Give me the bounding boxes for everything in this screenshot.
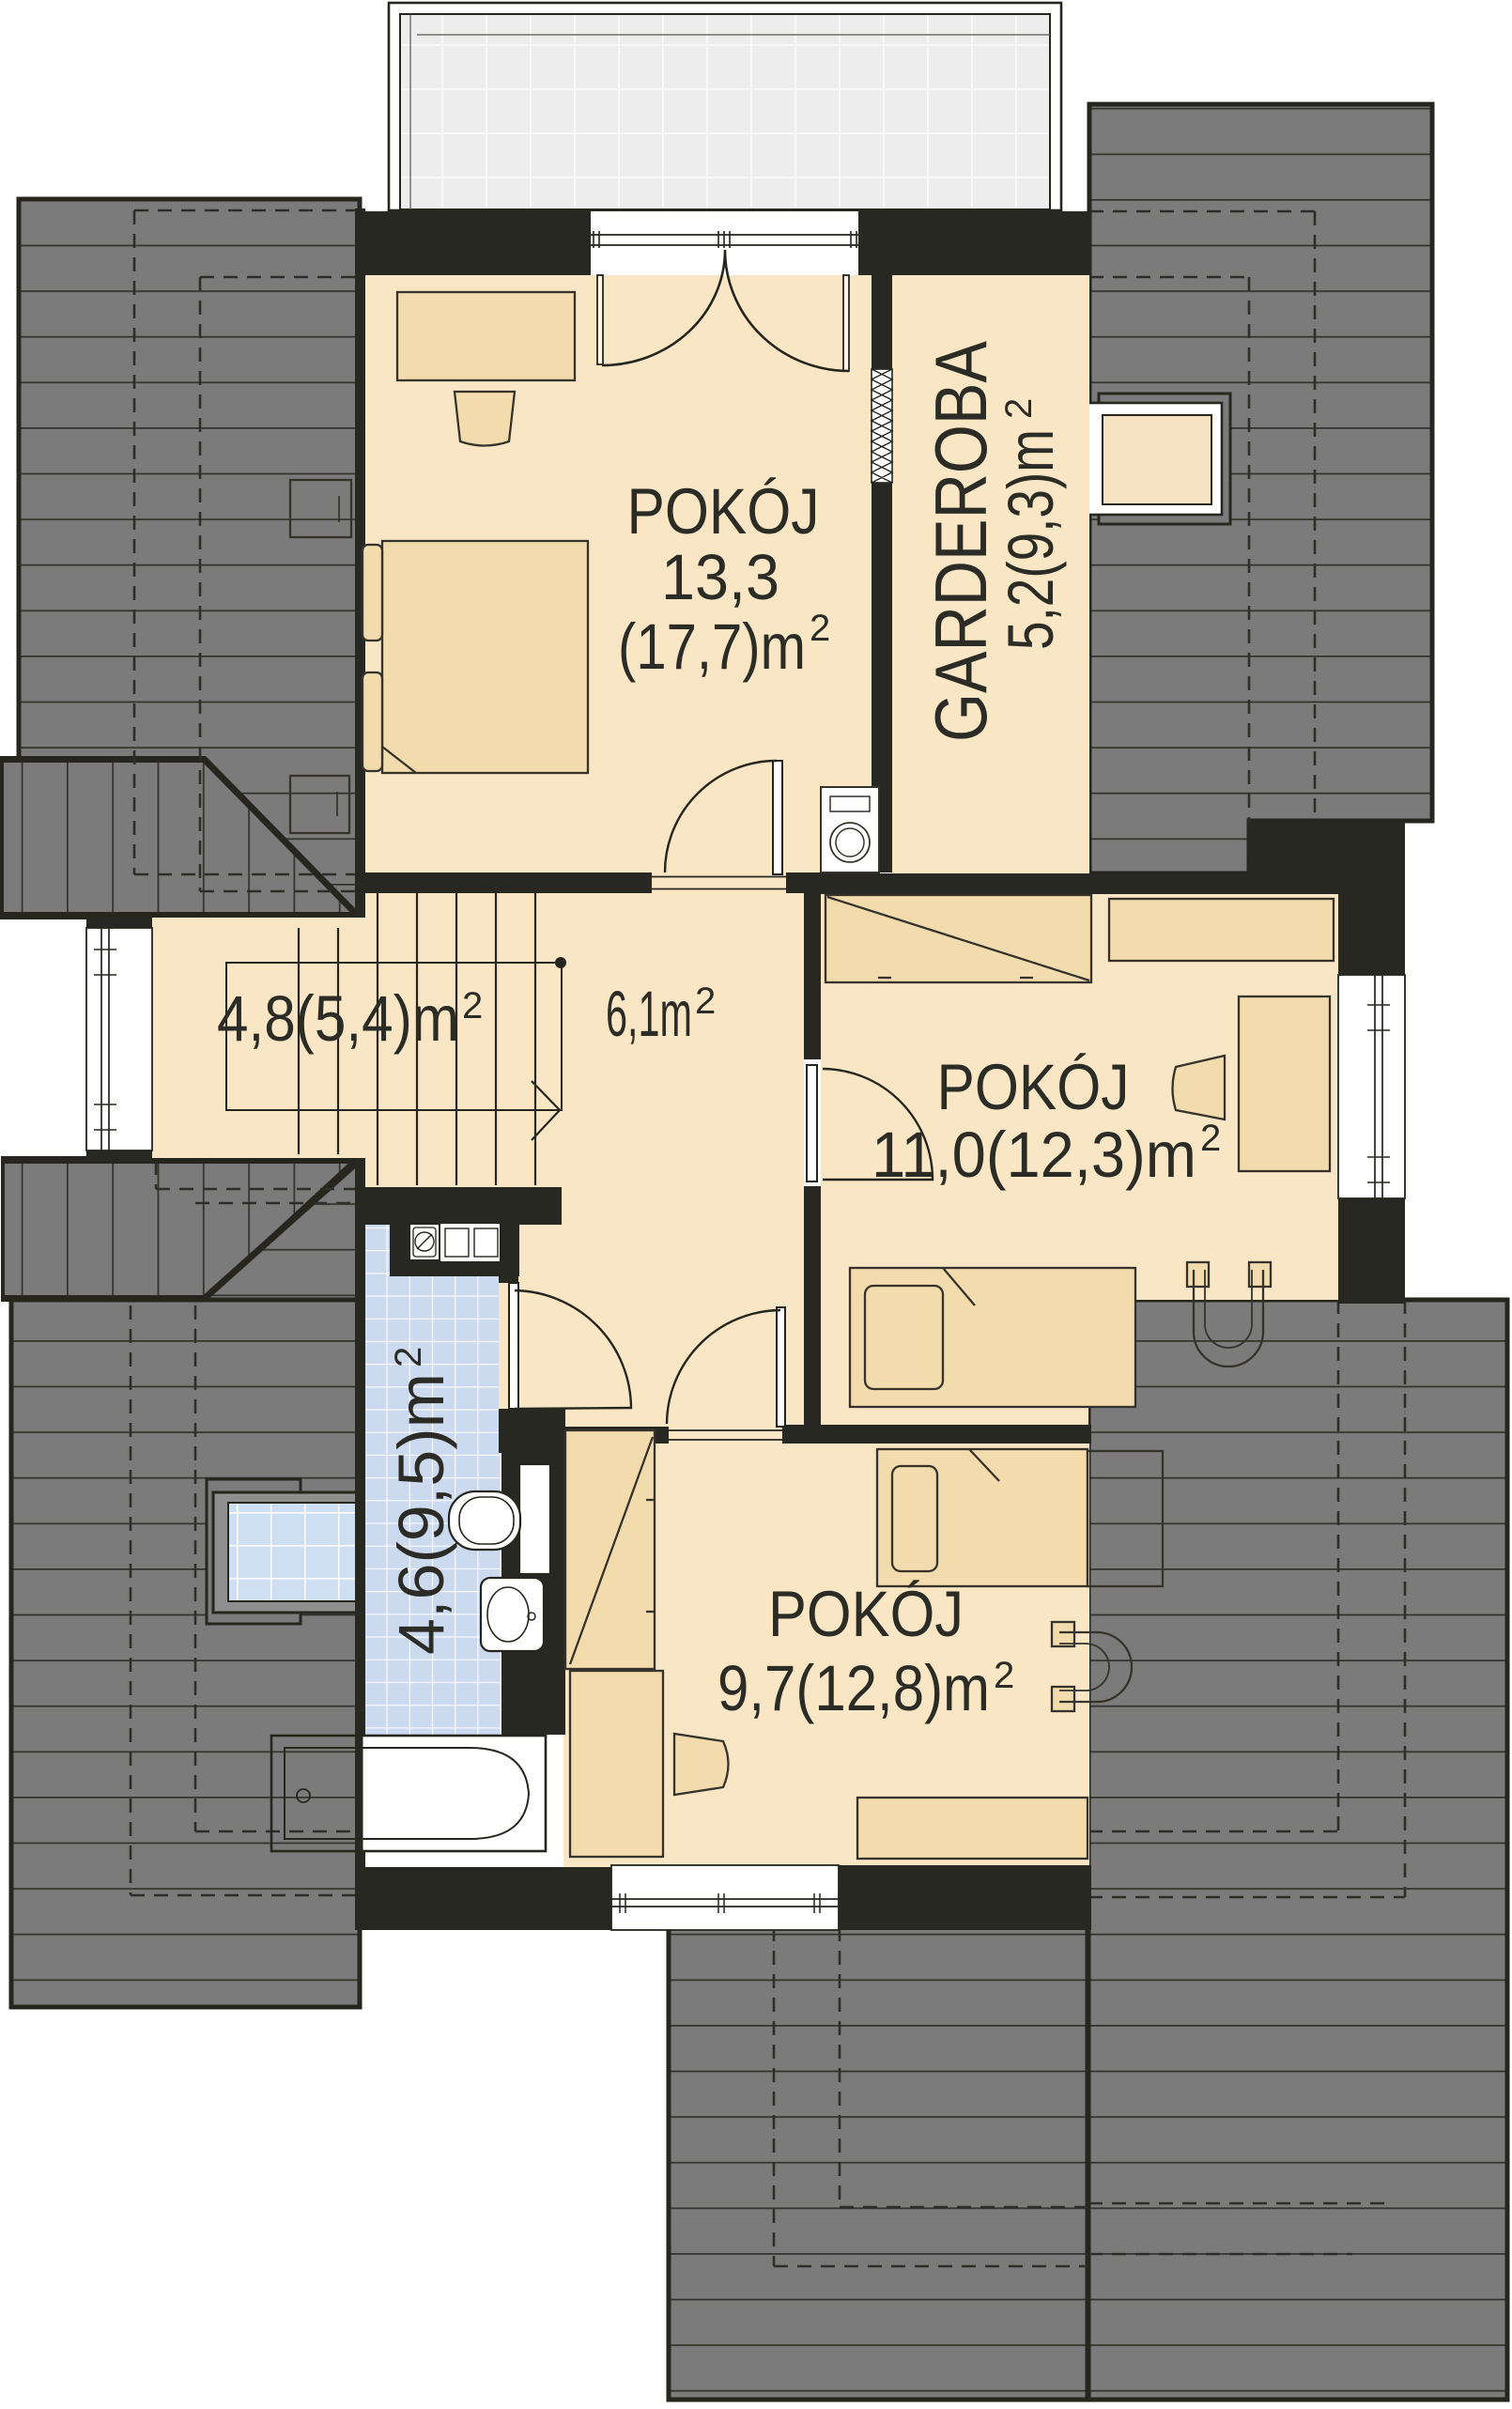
svg-text:6,1m: 6,1m	[606, 978, 692, 1050]
svg-text:POKÓJ: POKÓJ	[937, 1051, 1130, 1123]
svg-text:4,8(5,4)m: 4,8(5,4)m	[217, 982, 459, 1055]
svg-text:2: 2	[810, 608, 830, 649]
svg-text:POKÓJ: POKÓJ	[768, 1578, 964, 1650]
svg-text:4,6(9,5)m: 4,6(9,5)m	[385, 1373, 457, 1655]
svg-text:2: 2	[994, 1655, 1014, 1696]
svg-text:2: 2	[388, 1347, 429, 1367]
svg-text:2: 2	[998, 398, 1040, 419]
svg-text:(17,7)m: (17,7)m	[618, 610, 806, 683]
svg-text:GARDEROBA: GARDEROBA	[919, 341, 1002, 742]
svg-text:2: 2	[695, 981, 716, 1022]
svg-text:POKÓJ: POKÓJ	[627, 475, 820, 548]
svg-text:9,7(12,8)m: 9,7(12,8)m	[717, 1652, 990, 1724]
svg-text:11,0(12,3)m: 11,0(12,3)m	[872, 1119, 1196, 1191]
svg-text:2: 2	[1200, 1118, 1221, 1159]
svg-text:5,2(9,3)m: 5,2(9,3)m	[995, 429, 1067, 650]
svg-text:2: 2	[462, 985, 483, 1027]
svg-text:13,3: 13,3	[661, 541, 779, 613]
